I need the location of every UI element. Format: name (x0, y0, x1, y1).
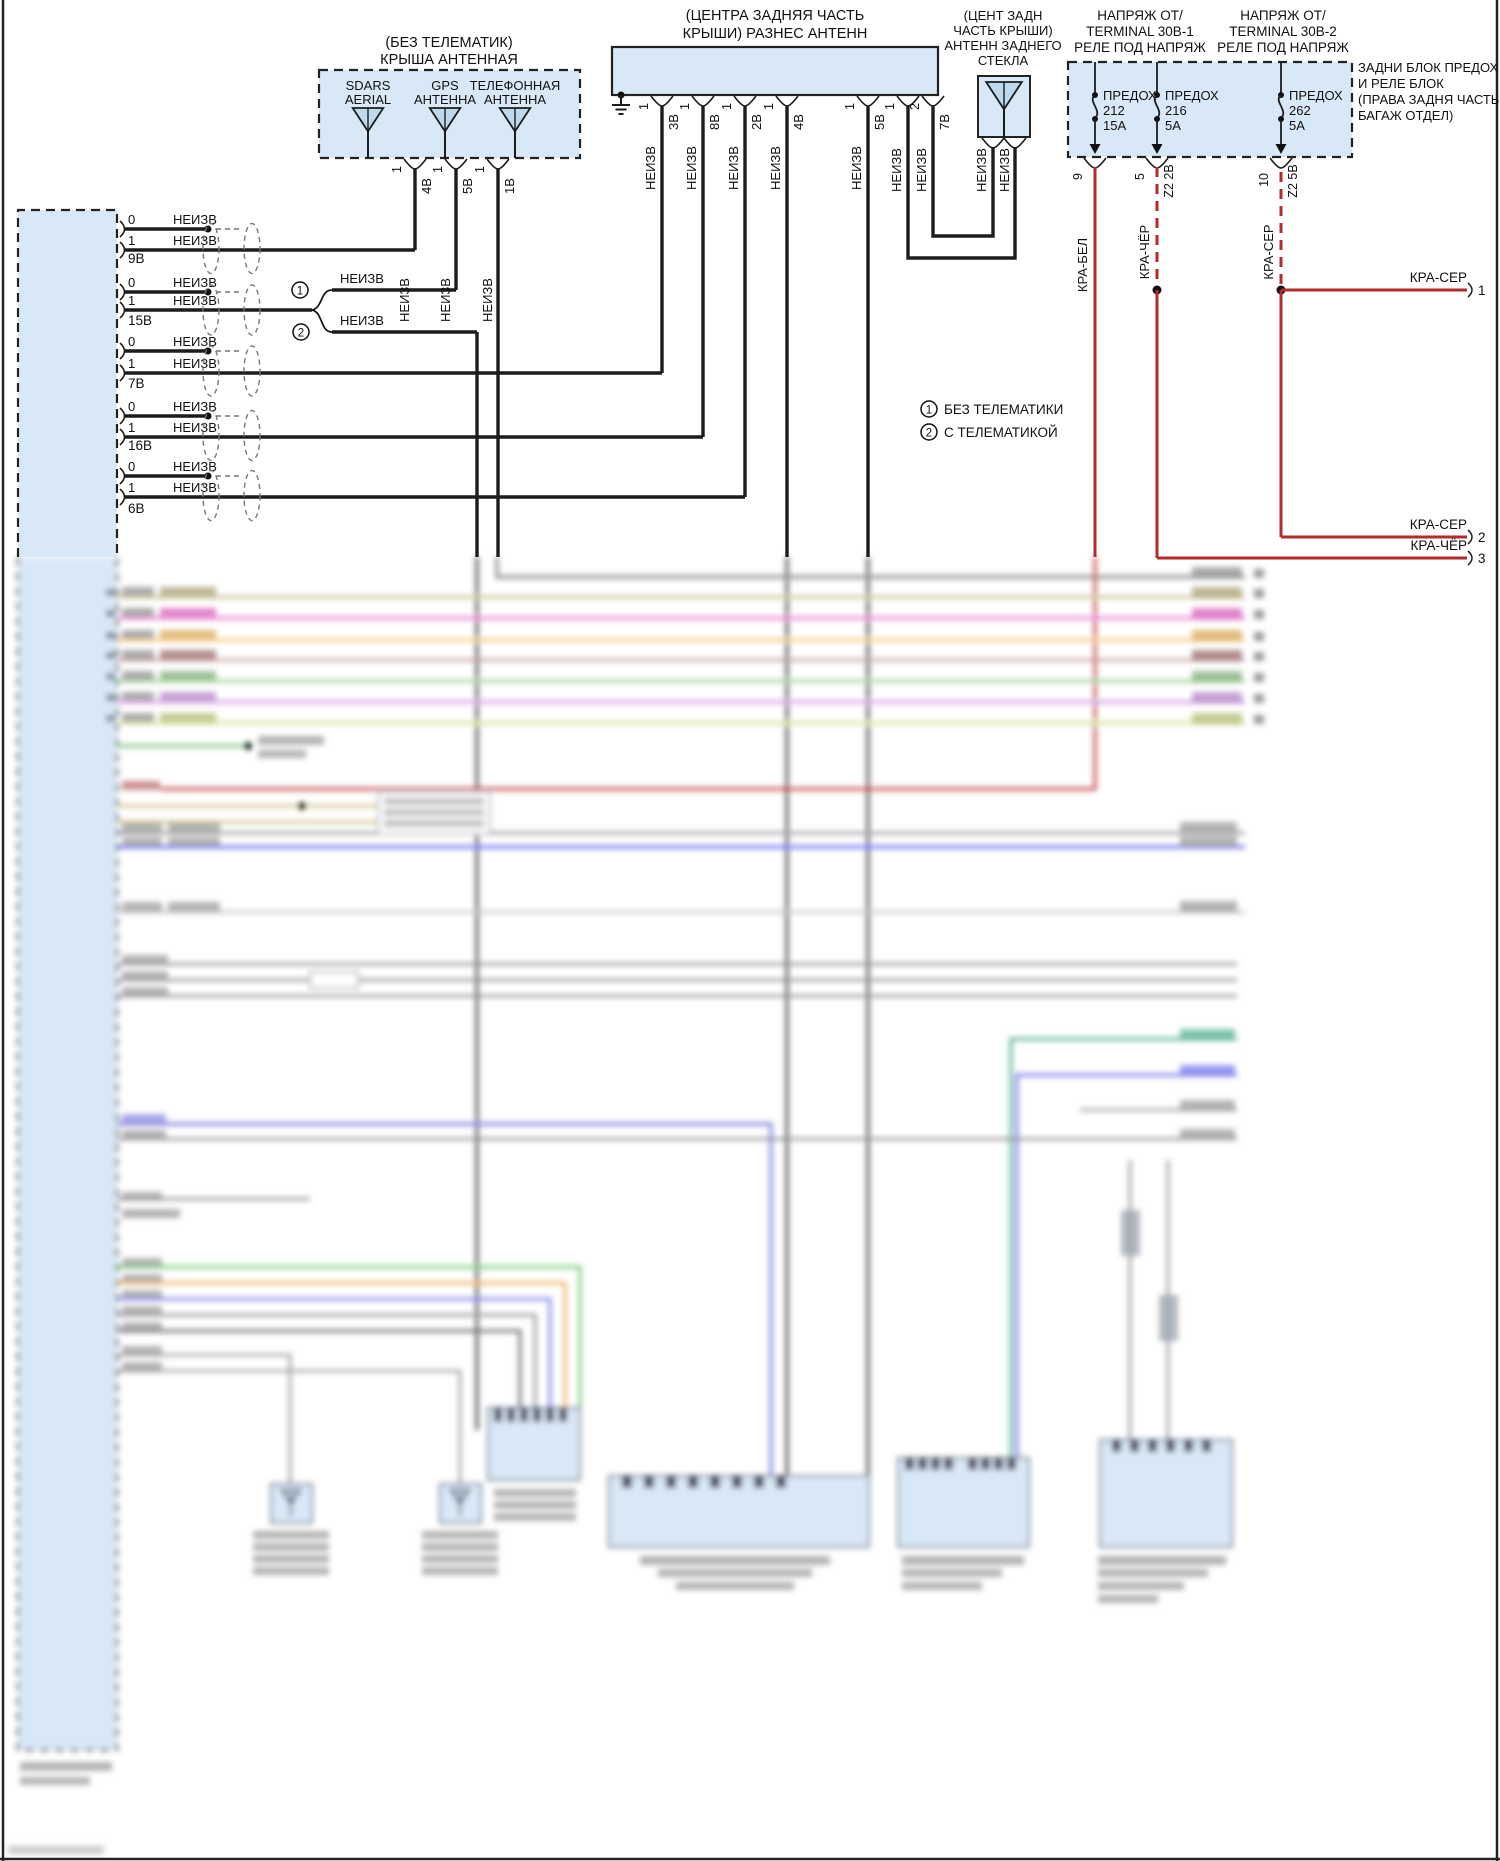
blurred-text (1254, 673, 1264, 682)
wire-label: НЕИЗВ (726, 146, 741, 190)
wire-name: 1В (502, 178, 517, 194)
option-brace (312, 290, 332, 332)
wire-name: 8В (707, 114, 722, 130)
blurred-pin (1202, 1440, 1211, 1452)
fuse-rating: 5А (1165, 118, 1181, 133)
pin-socket (120, 302, 125, 318)
pin-socket (1084, 158, 1106, 168)
power-source-title: НАПРЯЖ ОТ/ (1240, 8, 1326, 23)
blurred-pin (994, 1458, 1003, 1470)
pin-number: 0 (128, 459, 135, 474)
blurred-text (1098, 1582, 1184, 1590)
blurred-text (258, 736, 324, 745)
blurred-text (1254, 569, 1264, 578)
blurred-pin (533, 1408, 541, 1422)
blurred-text (168, 837, 220, 846)
blurred-text (122, 1306, 162, 1314)
blurred-text (122, 1192, 162, 1201)
wire-label: НЕИЗВ (974, 148, 989, 192)
circuit-id: Z2 2В (1162, 164, 1176, 197)
blurred-text (122, 837, 162, 846)
blurred-text (122, 1130, 166, 1139)
blurred-text (122, 1322, 162, 1330)
blurred-pin (754, 1476, 764, 1488)
blurred-pin (968, 1458, 977, 1470)
blurred-text (422, 1543, 498, 1551)
circled-mark-number: 2 (298, 328, 304, 340)
left-connector-box-fill (18, 210, 117, 557)
wire-label: НЕИЗВ (914, 148, 929, 192)
wire-label: НЕИЗВ (173, 356, 217, 371)
location-note: БАГАЖ ОТДЕЛ) (1358, 108, 1453, 123)
blurred-text (658, 1569, 812, 1577)
blurred-pin (688, 1476, 698, 1488)
blurred-text (20, 1762, 112, 1771)
blurred-text (160, 713, 216, 722)
pin-number: 1 (431, 166, 445, 173)
shield-symbol (244, 346, 260, 396)
power-source-title: РЕЛЕ ПОД НАПРЯЖ (1217, 40, 1349, 55)
left-connector-box-fill-blur (18, 557, 117, 1750)
wire-label: НЕИЗВ (684, 146, 699, 190)
antenna-label: SDARS (346, 78, 391, 93)
sharp-upper-section: 01НЕИЗВНЕИЗВ9В01НЕИЗВНЕИЗВ15В01НЕИЗВНЕИЗ… (0, 0, 1500, 1861)
blurred-text (160, 587, 216, 596)
circled-mark-number: 2 (926, 428, 932, 440)
pin-socket (120, 468, 125, 484)
pin-number: 2 (908, 103, 922, 110)
fuse-rating: 5А (1289, 118, 1305, 133)
blurred-text (122, 781, 160, 790)
wire-label: НЕИЗВ (173, 275, 217, 290)
location-note: ЗАДНИ БЛОК ПРЕДОХ (1358, 60, 1498, 75)
connector-name: 7В (128, 376, 145, 391)
blurred-pin (494, 1408, 502, 1422)
pin-number: 10 (1257, 173, 1271, 187)
blurred-text (122, 971, 168, 979)
blurred-text (494, 1501, 576, 1509)
fuse-rating: 15А (1103, 118, 1126, 133)
pin-socket (692, 96, 714, 106)
module-title: АНТЕНН ЗАДНЕГО (944, 38, 1061, 53)
blurred-text (168, 902, 220, 911)
pin-number: 9 (1071, 173, 1085, 180)
blurred-pin (507, 1408, 515, 1422)
blurred-text (122, 713, 154, 722)
blurred-text (122, 987, 168, 995)
blurred-text (1192, 608, 1242, 619)
blurred-text (1192, 587, 1242, 598)
blurred-text (640, 1556, 830, 1565)
wire-label: НЕИЗВ (340, 271, 384, 286)
blurred-text (160, 630, 216, 639)
pin-number: 1 (128, 293, 135, 308)
blurred-text (160, 671, 216, 680)
pin-socket (404, 159, 426, 169)
pin-socket (1468, 551, 1472, 565)
blurred-text (258, 750, 306, 758)
blurred-text (122, 1114, 166, 1123)
blurred-text (1180, 822, 1237, 833)
blurred-text (8, 1846, 104, 1854)
blurred-text (253, 1555, 329, 1563)
blurred-pin (622, 1476, 632, 1488)
blurred-text (902, 1582, 982, 1590)
blurred-text (422, 1567, 498, 1575)
wire-label: НЕИЗВ (397, 278, 412, 322)
blurred-text (1192, 630, 1242, 641)
module-title: (ЦЕНТ ЗАДН (964, 8, 1043, 23)
module-title: СТЕКЛА (978, 53, 1029, 68)
module-title: КРЫША АНТЕННАЯ (380, 52, 518, 68)
wire-label: НЕИЗВ (340, 313, 384, 328)
circled-mark-number: 1 (297, 286, 303, 298)
pin-number: 1 (128, 420, 135, 435)
pin-socket (120, 429, 125, 445)
pin-number: 0 (128, 275, 135, 290)
wire-label: НЕИЗВ (849, 146, 864, 190)
fuse-label: ПРЕДОХ (1289, 88, 1343, 103)
antenna-label: GPS (431, 78, 459, 93)
pin-socket (120, 242, 125, 258)
shield-symbol (203, 346, 219, 396)
power-source-title: НАПРЯЖ ОТ/ (1097, 8, 1183, 23)
wire-label: НЕИЗВ (768, 146, 783, 190)
blurred-text (902, 1569, 1002, 1577)
pin-number: 0 (128, 334, 135, 349)
blurred-text (253, 1567, 329, 1575)
wire-label: НЕИЗВ (173, 399, 217, 414)
blurred-pin (666, 1476, 676, 1488)
antenna-label: ТЕЛЕФОННАЯ (470, 78, 561, 93)
antenna-label: AERIAL (345, 92, 391, 107)
antenna-label: АНТЕННА (484, 92, 546, 107)
connector-name: 15В (128, 313, 152, 328)
blurred-text (1098, 1556, 1226, 1565)
blurred-text (122, 823, 162, 832)
blurred-pin (559, 1408, 567, 1422)
blurred-text (676, 1582, 794, 1590)
fuse-label: ПРЕДОХ (1165, 88, 1219, 103)
fuse-label: ПРЕДОХ (1103, 88, 1157, 103)
pin-socket (734, 96, 756, 106)
wiring-diagram: 01НЕИЗВНЕИЗВ9В01НЕИЗВНЕИЗВ15В01НЕИЗВНЕИЗ… (0, 0, 1500, 1861)
pin-socket (982, 138, 1004, 148)
connector-name: 6В (128, 501, 145, 516)
pin-number: 2 (1478, 530, 1486, 545)
pin-socket (857, 96, 879, 106)
blurred-text (160, 692, 216, 701)
blurred-text (1254, 652, 1264, 661)
pin-number: 0 (128, 399, 135, 414)
module-title: (ЦЕНТРА ЗАДНЯЯ ЧАСТЬ (686, 8, 865, 24)
fuse-number: 212 (1103, 103, 1125, 118)
pin-number: 3 (1478, 551, 1486, 566)
pin-number: 1 (678, 103, 692, 110)
pin-number: 1 (128, 480, 135, 495)
pin-number: 1 (390, 166, 404, 173)
blurred-text (122, 1209, 180, 1218)
blurred-text (1180, 1065, 1235, 1076)
blurred-pin (1184, 1440, 1193, 1452)
blurred-pin (905, 1458, 914, 1470)
blurred-wire (117, 1283, 565, 1408)
blurred-text (1254, 632, 1264, 641)
wire-label: НЕИЗВ (480, 278, 495, 322)
blurred-text (122, 1362, 162, 1370)
blurred-text (494, 1489, 576, 1497)
blurred-wire (117, 1315, 535, 1408)
fuse-number: 216 (1165, 103, 1187, 118)
wire-label: НЕИЗВ (173, 480, 217, 495)
blurred-text (494, 1513, 576, 1521)
blurred-text (122, 608, 154, 617)
blurred-text (106, 694, 115, 701)
location-note: И РЕЛЕ БЛОК (1358, 76, 1444, 91)
wire-label: НЕИЗВ (173, 212, 217, 227)
pin-socket (120, 408, 125, 424)
blurred-wire (497, 557, 1245, 577)
blurred-text (1098, 1595, 1158, 1603)
blurred-text (20, 1777, 90, 1785)
blurred-pin (918, 1458, 927, 1470)
pin-socket (120, 343, 125, 359)
wire-label: НЕИЗВ (889, 148, 904, 192)
blurred-text (122, 650, 154, 659)
power-source-title: РЕЛЕ ПОД НАПРЯЖ (1074, 40, 1206, 55)
blurred-text (422, 1531, 498, 1539)
blurred-text (1180, 836, 1237, 847)
module-title: КРЫШИ) РАЗНЕС АНТЕНН (683, 26, 868, 42)
blurred-text (122, 587, 154, 596)
pin-number: 1 (1478, 283, 1486, 298)
blurred-text (106, 673, 115, 680)
blurred-text (122, 1258, 162, 1266)
blurred-text (122, 955, 168, 963)
location-note: (ПРАВА ЗАДНЯ ЧАСТЬ (1358, 92, 1499, 107)
wire-name-kra-cher: КРА-ЧЁР (1137, 225, 1152, 279)
blurred-inline-connector (310, 972, 358, 988)
blurred-text (122, 1346, 162, 1354)
wire-label: НЕИЗВ (173, 459, 217, 474)
wire-name: 4В (791, 114, 806, 130)
blurred-pin (931, 1458, 940, 1470)
blurred-pin (1130, 1440, 1139, 1452)
pin-socket (487, 159, 509, 169)
pin-number: 1 (128, 233, 135, 248)
pin-socket (120, 221, 125, 237)
blurred-text (1254, 610, 1264, 619)
blurred-text (106, 610, 115, 617)
wire-name: 5В (872, 114, 887, 130)
pin-socket (1004, 138, 1026, 148)
pin-number: 1 (473, 166, 487, 173)
blurred-pin (546, 1408, 554, 1422)
pin-socket (1468, 283, 1472, 297)
blurred-text (106, 652, 115, 659)
wire-name: 5В (460, 178, 475, 194)
pin-socket (445, 159, 467, 169)
blurred-pin (981, 1458, 990, 1470)
blurred-wire (117, 1267, 580, 1408)
connector-name: 16В (128, 438, 152, 453)
blurred-text (160, 650, 216, 659)
blurred-text (1192, 650, 1242, 661)
blurred-text (122, 1290, 162, 1298)
wire-name: 7В (937, 114, 952, 130)
pin-number: 1 (637, 103, 651, 110)
blurred-pin (1112, 1440, 1121, 1452)
pin-socket (1468, 530, 1472, 544)
blurred-text (106, 589, 115, 596)
blurred-text (1254, 694, 1264, 703)
circuit-id: Z2 5В (1286, 164, 1300, 197)
pin-number: 1 (843, 103, 857, 110)
blurred-text (253, 1531, 329, 1539)
pin-number: 1 (720, 103, 734, 110)
blurred-text (122, 692, 154, 701)
pin-number: 1 (128, 356, 135, 371)
blurred-text (1121, 1210, 1140, 1256)
pin-number: 1 (762, 103, 776, 110)
module-title: (БЕЗ ТЕЛЕМАТИК) (385, 35, 512, 51)
blurred-text (1254, 715, 1264, 724)
blurred-text (1192, 671, 1242, 682)
blurred-pin (776, 1476, 786, 1488)
wire-label: НЕИЗВ (173, 293, 217, 308)
blurred-pin (520, 1408, 528, 1422)
connector-name: 9В (128, 251, 145, 266)
blurred-text (122, 1274, 162, 1282)
blurred-pin (1148, 1440, 1157, 1452)
blurred-text (384, 820, 484, 827)
wire-name-kra-ser: КРА-СЕР (1261, 224, 1276, 279)
fuse-number: 262 (1289, 103, 1311, 118)
blurred-wire (117, 1355, 290, 1484)
blurred-text (1192, 713, 1242, 724)
pin-number: 1 (883, 103, 897, 110)
blurred-text (106, 715, 115, 722)
blurred-text (902, 1556, 1024, 1565)
wire-name: КРА-ЧЁР (1411, 538, 1467, 553)
blurred-text (106, 632, 115, 639)
pin-socket (120, 489, 125, 505)
blurred-pin (944, 1458, 953, 1470)
blurred-text (422, 1555, 498, 1563)
pin-socket (776, 96, 798, 106)
wire-name-kra-bel: КРА-БЕЛ (1075, 238, 1090, 292)
blurred-text (1180, 1129, 1235, 1140)
blurred-text (1180, 1100, 1235, 1111)
blurred-text (1192, 567, 1242, 578)
junction-dot (298, 802, 306, 810)
blurred-text (122, 630, 154, 639)
blurred-component-box (898, 1458, 1029, 1547)
blurred-text (160, 608, 216, 617)
blurred-pin (644, 1476, 654, 1488)
blurred-text (122, 902, 162, 911)
pin-socket (922, 96, 944, 106)
module-title: ЧАСТЬ КРЫШИ) (953, 23, 1052, 38)
blurred-text (253, 1543, 329, 1551)
pin-number: 5 (1133, 173, 1147, 180)
wire-name: 3В (666, 114, 681, 130)
power-source-title: TERMINAL 30В-2 (1229, 24, 1337, 39)
blurred-wire (117, 1371, 460, 1484)
center-antenna-box (612, 47, 938, 95)
blurred-pin (710, 1476, 720, 1488)
blurred-text (1159, 1295, 1178, 1341)
wire-name: 4В (419, 178, 434, 194)
legend-text: С ТЕЛЕМАТИКОЙ (944, 425, 1058, 440)
blurred-lower-section (8, 557, 1264, 1854)
pin-number: 0 (128, 212, 135, 227)
wire-name: КРА-СЕР (1410, 517, 1467, 532)
wire-label: НЕИЗВ (173, 420, 217, 435)
wire-label: НЕИЗВ (643, 146, 658, 190)
pin-socket (120, 284, 125, 300)
blurred-text (1098, 1569, 1208, 1577)
blurred-text (1180, 901, 1237, 912)
wire-label: НЕИЗВ (173, 233, 217, 248)
circled-mark-number: 1 (926, 405, 932, 417)
legend-text: БЕЗ ТЕЛЕМАТИКИ (944, 402, 1063, 417)
blurred-pin (1166, 1440, 1175, 1452)
pin-socket (651, 96, 673, 106)
power-source-title: TERMINAL 30В-1 (1086, 24, 1194, 39)
blurred-pin (732, 1476, 742, 1488)
blurred-pin (1007, 1458, 1016, 1470)
blurred-text (1254, 589, 1264, 598)
junction-dot (244, 742, 252, 750)
blurred-text (122, 671, 154, 680)
wire-name: КРА-СЕР (1410, 270, 1467, 285)
blurred-text (168, 823, 220, 832)
wire-label: НЕИЗВ (438, 278, 453, 322)
pin-socket (120, 365, 125, 381)
blurred-text (384, 809, 484, 816)
blurred-text (1192, 692, 1242, 703)
antenna-label: АНТЕННА (414, 92, 476, 107)
wire-label: НЕИЗВ (997, 148, 1012, 192)
wire-name: 2В (749, 114, 764, 130)
blurred-text (1180, 1029, 1235, 1040)
blurred-text (384, 798, 484, 805)
schematic-page: 01НЕИЗВНЕИЗВ9В01НЕИЗВНЕИЗВ15В01НЕИЗВНЕИЗ… (0, 0, 1500, 1861)
blurred-component-box (1100, 1440, 1232, 1547)
